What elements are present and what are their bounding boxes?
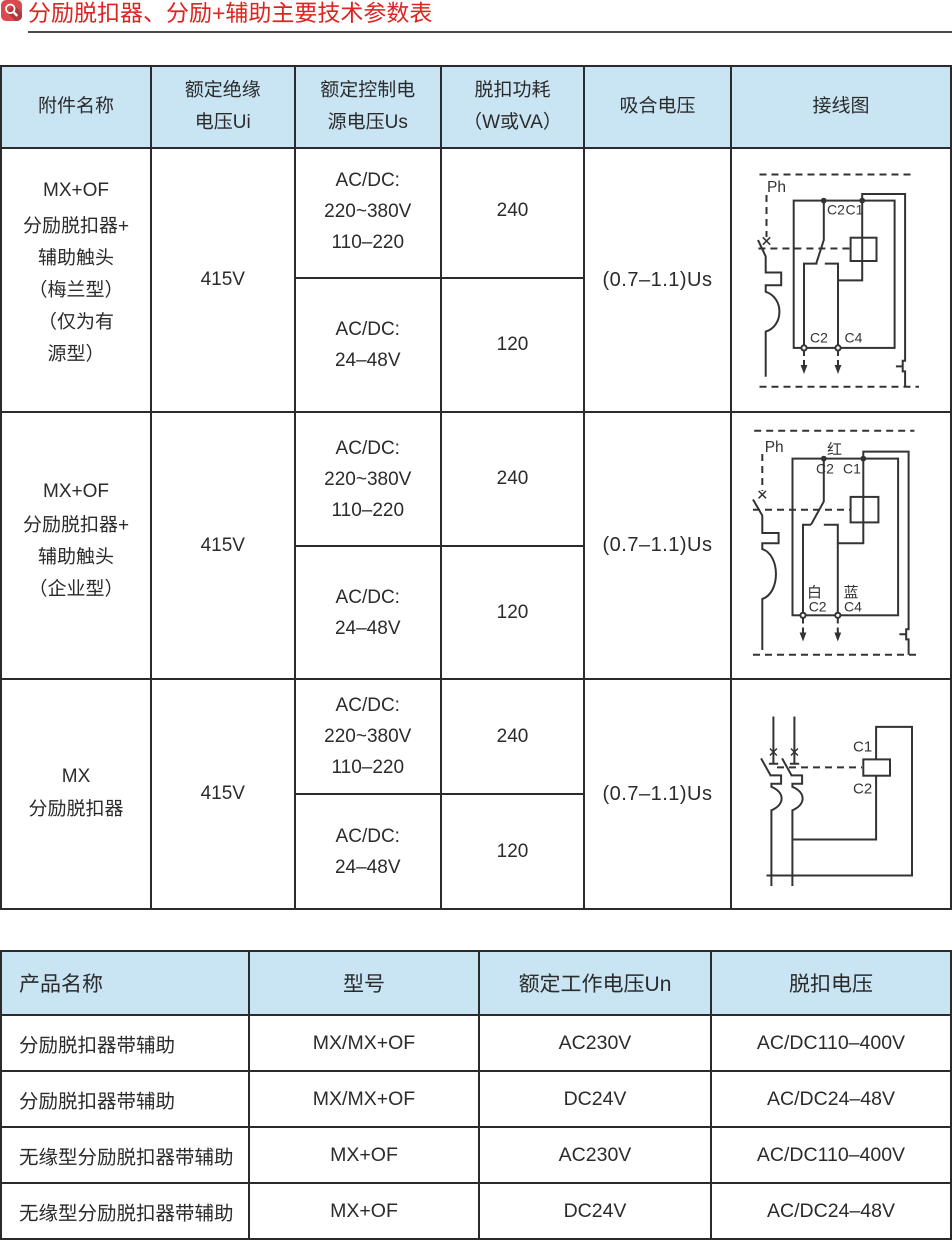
svg-text:C1: C1	[843, 461, 861, 477]
svg-text:C1: C1	[853, 739, 872, 756]
svg-text:Ph: Ph	[767, 179, 786, 196]
svg-text:C4: C4	[845, 330, 863, 346]
svg-text:红: 红	[827, 442, 842, 459]
svg-text:C4: C4	[844, 599, 862, 615]
svg-text:C2: C2	[809, 599, 827, 615]
svg-text:C2: C2	[853, 781, 872, 798]
svg-text:C1: C1	[846, 202, 864, 218]
svg-text:C2: C2	[810, 330, 828, 346]
svg-text:C2: C2	[827, 202, 845, 218]
svg-text:C2: C2	[816, 461, 834, 477]
svg-text:Ph: Ph	[765, 439, 784, 456]
